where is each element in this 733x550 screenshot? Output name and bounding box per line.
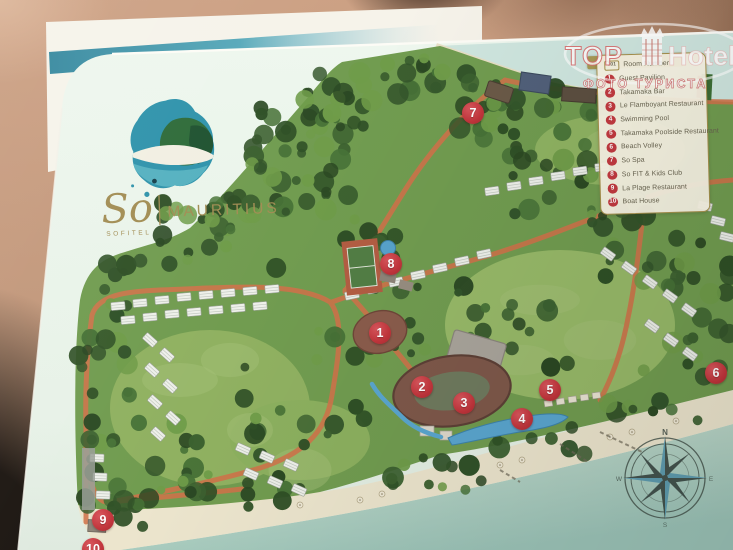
legend-item-number: 5 [606,129,616,139]
photo-background: So SOFITEL MAURITIUS 101 Room Number 1 G… [0,0,733,550]
legend-item-number: 1 [605,74,615,84]
legend-item-number: 3 [605,102,615,112]
legend-item-label: Guest Pavilion [619,74,665,82]
legend-item-label: Beach Volley [621,143,662,151]
legend-item-label: Le Flamboyant Restaurant [620,100,704,109]
legend-item-label: Boat House [623,198,660,206]
compass-rose: N E S W [615,428,715,528]
legend-item-label: Takamaka Poolside Restaurant [621,127,719,137]
logo-brand: SOFITEL [106,229,152,238]
legend-item-label: Takamaka Bar [619,88,664,96]
legend-item-number: 7 [607,156,617,166]
legend-item: 10 Boat House [608,193,706,209]
legend-item-number: 2 [605,88,615,98]
compass-n: N [662,428,668,437]
legend-item-number: 8 [607,170,617,180]
kids-pool [381,241,396,256]
compass-s: S [663,522,668,528]
island-illustration [123,91,222,198]
legend-item-number: 10 [608,197,618,207]
compass-w: W [616,476,623,483]
tennis-court [341,238,382,295]
legend-item-number: 4 [606,115,616,125]
compass-star [623,436,707,520]
legend-item-label: Swimming Pool [620,115,669,123]
logo-script: So [101,185,154,233]
legend-items: 1 Guest Pavilion 2 Takamaka Bar 3 Le Fla… [604,70,706,210]
legend-item-label: So FIT & Kids Club [622,169,682,178]
compass-e: E [709,476,714,483]
so-mauritius-logo: So SOFITEL MAURITIUS [93,89,278,247]
legend-item-number: 9 [608,184,618,194]
legend-item-label: La Plage Restaurant [622,183,687,192]
logo-destination: MAURITIUS [167,200,278,221]
legend-item-label: So Spa [621,157,644,165]
legend-item-number: 6 [606,143,616,153]
room-number-plate: 101 [604,60,619,70]
map-legend: 101 Room Number 1 Guest Pavilion 2 Takam… [596,52,710,215]
